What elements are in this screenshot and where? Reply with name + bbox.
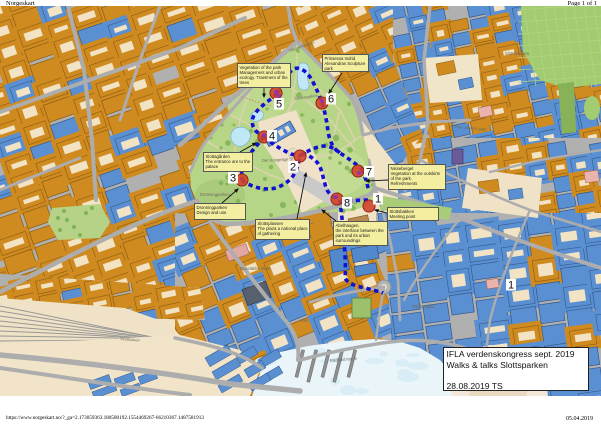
- svg-text:1: 1: [375, 194, 381, 206]
- svg-text:8: 8: [344, 198, 350, 210]
- svg-text:3: 3: [230, 173, 236, 185]
- svg-text:2: 2: [290, 162, 296, 174]
- svg-text:5: 5: [276, 99, 282, 111]
- svg-text:Slottsbakken: Slottsbakken: [505, 51, 530, 56]
- svg-text:Rådhusgata: Rådhusgata: [412, 304, 435, 309]
- svg-text:Vika: Vika: [300, 318, 309, 323]
- svg-text:7: 7: [366, 167, 372, 179]
- svg-text:Ruseløkka skole: Ruseløkka skole: [240, 266, 271, 271]
- svg-text:Dronningparken: Dronningparken: [200, 192, 230, 197]
- svg-text:4: 4: [269, 131, 275, 143]
- svg-text:6: 6: [328, 94, 334, 106]
- svg-text:1: 1: [508, 280, 514, 292]
